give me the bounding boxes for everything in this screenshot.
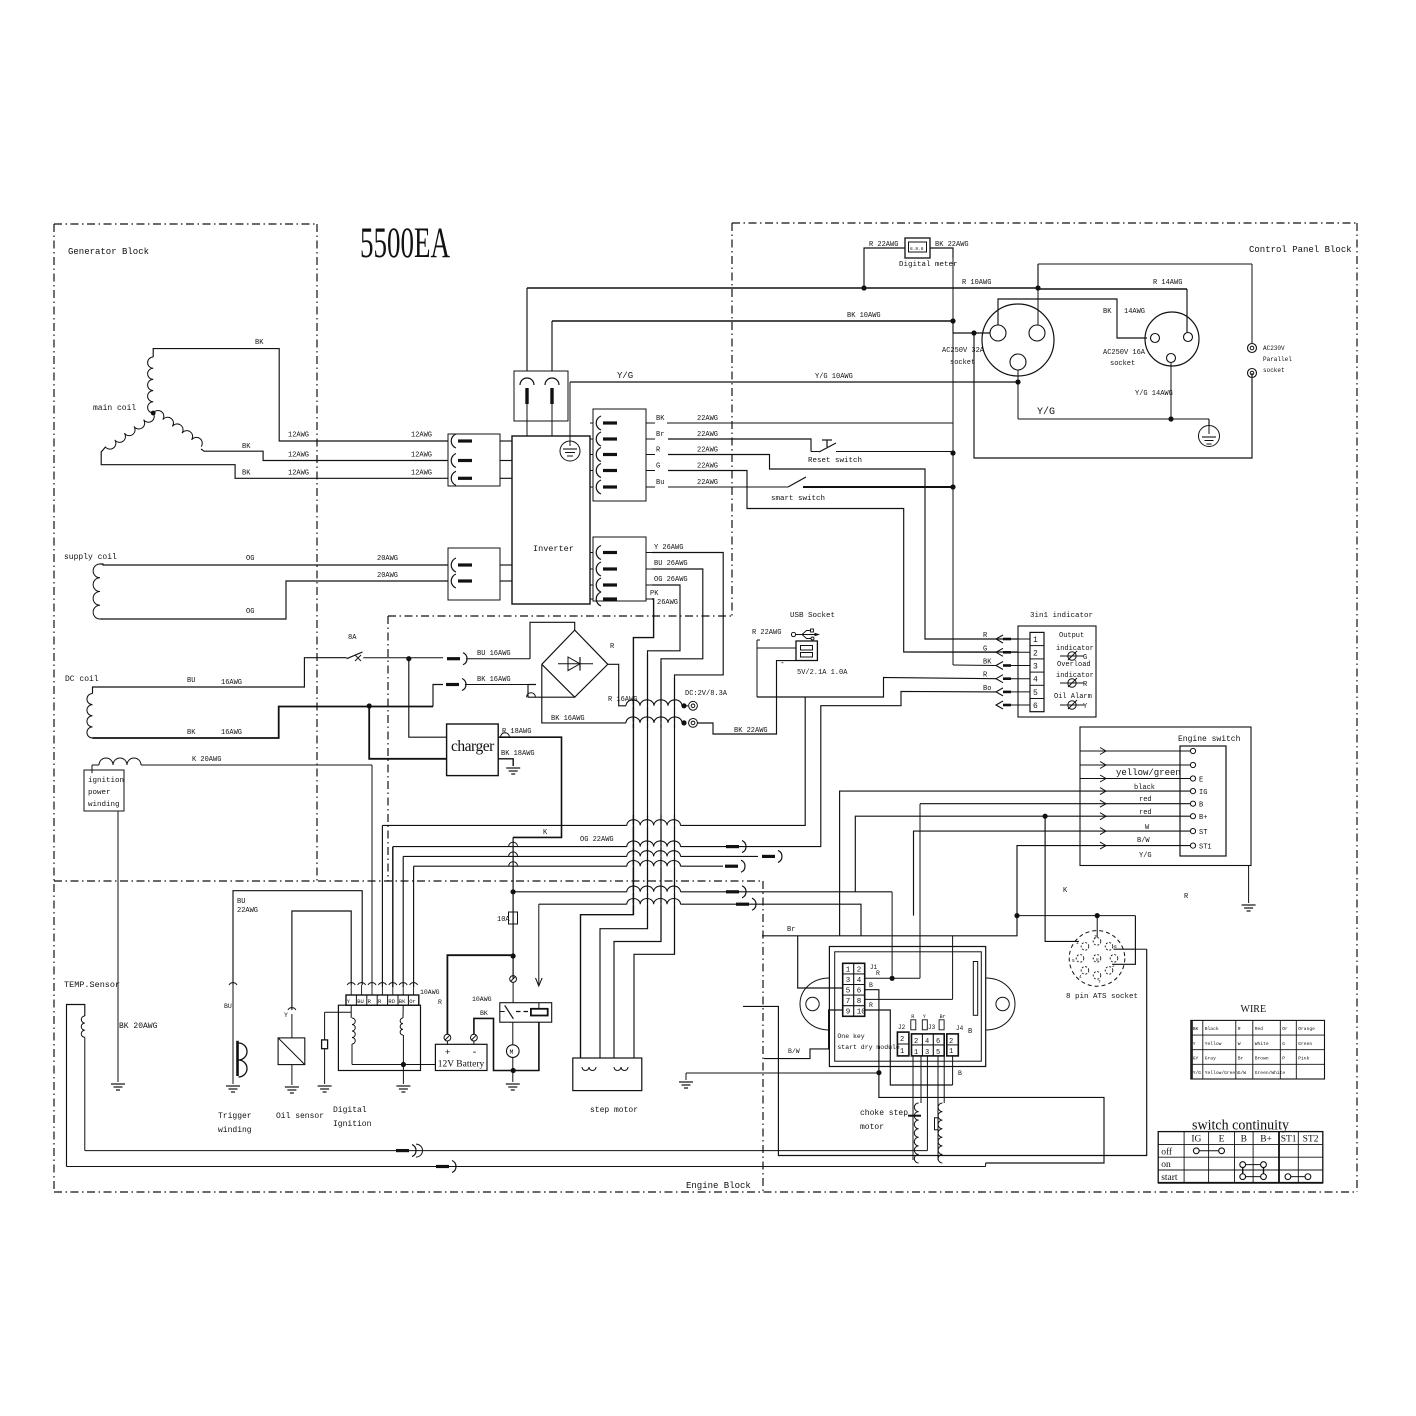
svg-text:Br: Br bbox=[1238, 1056, 1244, 1062]
svg-text:yellow/green: yellow/green bbox=[1116, 768, 1181, 778]
svg-text:Yellow: Yellow bbox=[1205, 1041, 1222, 1047]
svg-text:Inverter: Inverter bbox=[533, 544, 574, 554]
svg-text:5500EA: 5500EA bbox=[360, 220, 450, 267]
svg-text:Parallel: Parallel bbox=[1263, 356, 1292, 363]
svg-text:BU 26AWG: BU 26AWG bbox=[654, 560, 688, 568]
svg-text:AC250V 16A: AC250V 16A bbox=[1103, 349, 1146, 357]
svg-text:Y/G 10AWG: Y/G 10AWG bbox=[815, 373, 853, 381]
svg-text:supply coil: supply coil bbox=[64, 553, 117, 562]
svg-text:22AWG: 22AWG bbox=[697, 415, 718, 423]
svg-text:R: R bbox=[869, 1002, 873, 1009]
svg-text:4: 4 bbox=[1079, 974, 1082, 980]
svg-text:One key: One key bbox=[837, 1033, 864, 1040]
svg-text:2: 2 bbox=[900, 1036, 904, 1044]
svg-text:BK: BK bbox=[399, 998, 406, 1005]
svg-text:Green/White: Green/White bbox=[1255, 1070, 1286, 1076]
svg-text:3: 3 bbox=[1094, 934, 1097, 940]
svg-text:8A: 8A bbox=[348, 634, 357, 642]
svg-text:Br: Br bbox=[787, 926, 795, 934]
svg-text:on: on bbox=[1161, 1160, 1171, 1170]
svg-text:ST1: ST1 bbox=[1199, 844, 1212, 852]
svg-text:14AWG: 14AWG bbox=[1124, 308, 1145, 316]
svg-text:6: 6 bbox=[1033, 702, 1038, 711]
svg-text:7: 7 bbox=[846, 998, 851, 1006]
svg-text:start: start bbox=[1161, 1173, 1178, 1183]
svg-text:main coil: main coil bbox=[93, 404, 136, 413]
svg-text:BK: BK bbox=[480, 1010, 488, 1017]
svg-text:Y/G: Y/G bbox=[617, 371, 633, 381]
svg-text:choke step: choke step bbox=[860, 1109, 908, 1118]
svg-text:1: 1 bbox=[914, 1049, 918, 1057]
svg-text:Brown: Brown bbox=[1255, 1056, 1269, 1062]
svg-text:4: 4 bbox=[925, 1038, 929, 1046]
svg-text:22AWG: 22AWG bbox=[697, 431, 718, 439]
svg-text:M: M bbox=[510, 1049, 514, 1056]
svg-text:G: G bbox=[1282, 1041, 1285, 1047]
svg-text:R: R bbox=[438, 999, 442, 1006]
svg-text:20AWG: 20AWG bbox=[377, 555, 398, 563]
svg-text:9: 9 bbox=[846, 1009, 851, 1017]
svg-text:BK: BK bbox=[187, 729, 196, 737]
svg-text:OG 26AWG: OG 26AWG bbox=[654, 576, 688, 584]
svg-text:16AWG: 16AWG bbox=[221, 729, 242, 737]
svg-text:26AWG: 26AWG bbox=[657, 599, 678, 607]
svg-text:indicator: indicator bbox=[1056, 645, 1094, 653]
svg-text:12AWG: 12AWG bbox=[411, 452, 432, 460]
svg-text:P: P bbox=[1282, 1056, 1285, 1062]
svg-text:K 20AWG: K 20AWG bbox=[192, 756, 221, 764]
svg-text:Br: Br bbox=[940, 1014, 946, 1020]
svg-text:Y: Y bbox=[284, 1012, 288, 1019]
svg-text:1: 1 bbox=[846, 966, 851, 974]
svg-text:USB Socket: USB Socket bbox=[790, 612, 835, 620]
svg-text:DC:2V/8.3A: DC:2V/8.3A bbox=[685, 690, 728, 698]
svg-text:TEMP.Sensor: TEMP.Sensor bbox=[64, 980, 120, 990]
svg-text:BK 22AWG: BK 22AWG bbox=[734, 727, 768, 735]
svg-text:OG 22AWG: OG 22AWG bbox=[580, 836, 614, 844]
svg-text:3: 3 bbox=[925, 1049, 929, 1057]
svg-text:7: 7 bbox=[1098, 979, 1101, 985]
svg-text:12AWG: 12AWG bbox=[411, 470, 432, 478]
svg-text:Yellow/Green: Yellow/Green bbox=[1205, 1070, 1238, 1076]
svg-text:B: B bbox=[958, 1070, 962, 1077]
svg-text:Generator Block: Generator Block bbox=[68, 247, 149, 257]
svg-text:socket: socket bbox=[950, 359, 975, 367]
svg-text:Y: Y bbox=[923, 1014, 926, 1020]
svg-text:5: 5 bbox=[936, 1049, 940, 1057]
svg-text:Black: Black bbox=[1205, 1026, 1219, 1032]
svg-text:Ignition: Ignition bbox=[333, 1120, 372, 1129]
svg-text:OG: OG bbox=[246, 608, 254, 616]
svg-text:3: 3 bbox=[846, 977, 851, 985]
svg-text:5: 5 bbox=[846, 988, 851, 996]
svg-text:Y: Y bbox=[1193, 1041, 1196, 1047]
svg-text:3: 3 bbox=[1033, 663, 1038, 672]
svg-text:BK: BK bbox=[1193, 1026, 1199, 1032]
svg-text:IG: IG bbox=[1191, 1135, 1201, 1145]
svg-text:Output: Output bbox=[1059, 632, 1084, 640]
svg-text:12V Battery: 12V Battery bbox=[438, 1060, 485, 1070]
svg-text:BU: BU bbox=[224, 1003, 232, 1010]
svg-text:22AWG: 22AWG bbox=[697, 479, 718, 487]
svg-text:1: 1 bbox=[949, 1048, 953, 1056]
svg-text:Or: Or bbox=[409, 998, 416, 1005]
svg-text:socket: socket bbox=[1110, 360, 1135, 368]
svg-text:ST1: ST1 bbox=[1281, 1135, 1297, 1145]
svg-text:Reset switch: Reset switch bbox=[808, 457, 862, 465]
svg-text:R: R bbox=[876, 970, 880, 977]
svg-text:Red: Red bbox=[1255, 1026, 1264, 1032]
svg-text:Overload: Overload bbox=[1057, 661, 1091, 669]
svg-text:BK 16AWG: BK 16AWG bbox=[551, 715, 585, 723]
svg-text:charger: charger bbox=[451, 738, 495, 755]
svg-text:E: E bbox=[1199, 777, 1203, 785]
svg-text:red: red bbox=[1139, 796, 1152, 804]
svg-text:Digital: Digital bbox=[333, 1106, 367, 1115]
svg-text:winding: winding bbox=[218, 1126, 252, 1135]
svg-text:Y/G 14AWG: Y/G 14AWG bbox=[1135, 390, 1173, 398]
svg-text:12AWG: 12AWG bbox=[288, 470, 309, 478]
svg-text:-: - bbox=[471, 1048, 477, 1059]
svg-text:J4: J4 bbox=[956, 1025, 964, 1032]
svg-text:B/W: B/W bbox=[788, 1048, 800, 1055]
svg-text:12AWG: 12AWG bbox=[411, 432, 432, 440]
svg-text:BK: BK bbox=[1103, 308, 1112, 316]
svg-text:B: B bbox=[869, 982, 873, 989]
svg-text:Br: Br bbox=[656, 431, 664, 439]
svg-text:2: 2 bbox=[914, 1038, 918, 1046]
svg-text:Y 26AWG: Y 26AWG bbox=[654, 544, 683, 552]
svg-text:White: White bbox=[1255, 1041, 1269, 1047]
svg-text:Gray: Gray bbox=[1205, 1056, 1216, 1062]
svg-text:20AWG: 20AWG bbox=[377, 572, 398, 580]
svg-text:22AWG: 22AWG bbox=[697, 463, 718, 471]
svg-text:WIRE: WIRE bbox=[1241, 1004, 1267, 1015]
svg-text:Engine switch: Engine switch bbox=[1178, 735, 1241, 744]
svg-text:BU: BU bbox=[357, 998, 364, 1005]
svg-text:Oil sensor: Oil sensor bbox=[276, 1112, 324, 1121]
svg-text:W: W bbox=[1238, 1041, 1241, 1047]
svg-text:5V/2.1A 1.0A: 5V/2.1A 1.0A bbox=[797, 669, 848, 677]
svg-text:BU: BU bbox=[237, 898, 245, 906]
svg-text:8 pin ATS socket: 8 pin ATS socket bbox=[1066, 993, 1138, 1001]
svg-text:R: R bbox=[1238, 1026, 1241, 1032]
svg-text:2: 2 bbox=[1033, 649, 1038, 658]
svg-text:RD: RD bbox=[388, 998, 395, 1005]
svg-text:BK: BK bbox=[255, 339, 264, 347]
svg-text:B: B bbox=[968, 1028, 972, 1036]
svg-text:Green: Green bbox=[1298, 1041, 1312, 1047]
svg-text:Pink: Pink bbox=[1298, 1056, 1309, 1062]
svg-text:BU: BU bbox=[187, 677, 195, 685]
svg-text:8: 8 bbox=[1096, 957, 1099, 963]
svg-text:AC230V: AC230V bbox=[1263, 345, 1285, 352]
svg-text:R 10AWG: R 10AWG bbox=[962, 279, 991, 287]
svg-text:BK: BK bbox=[242, 470, 251, 478]
svg-text:B+: B+ bbox=[1260, 1135, 1272, 1145]
svg-text:G: G bbox=[656, 463, 660, 471]
svg-text:10AWG: 10AWG bbox=[420, 989, 440, 996]
svg-text:ignition: ignition bbox=[88, 777, 124, 785]
svg-text:Bu: Bu bbox=[656, 479, 664, 487]
svg-text:+: + bbox=[445, 1048, 450, 1058]
svg-text:J2: J2 bbox=[898, 1024, 906, 1031]
svg-text:10AWG: 10AWG bbox=[472, 996, 492, 1003]
svg-text:R 18AWG: R 18AWG bbox=[502, 728, 531, 736]
svg-text:R 22AWG: R 22AWG bbox=[752, 629, 781, 637]
svg-text:power: power bbox=[88, 789, 111, 797]
svg-text:BU 16AWG: BU 16AWG bbox=[477, 650, 511, 658]
svg-text:2: 2 bbox=[857, 966, 862, 974]
svg-text:10A: 10A bbox=[497, 916, 510, 924]
svg-text:22AWG: 22AWG bbox=[697, 447, 718, 455]
svg-text:E: E bbox=[1219, 1135, 1225, 1145]
svg-text:B/W: B/W bbox=[1137, 837, 1150, 845]
svg-text:Engine Block: Engine Block bbox=[686, 1181, 751, 1191]
svg-text:motor: motor bbox=[860, 1123, 884, 1132]
svg-text:Control Panel Block: Control Panel Block bbox=[1249, 245, 1352, 255]
svg-text:B: B bbox=[1199, 802, 1203, 810]
svg-text:6: 6 bbox=[936, 1038, 940, 1046]
svg-text:BK: BK bbox=[242, 443, 251, 451]
svg-text:Y/G: Y/G bbox=[1193, 1070, 1202, 1076]
svg-text:PK: PK bbox=[650, 590, 659, 598]
svg-text:1: 1 bbox=[900, 1048, 904, 1056]
svg-text:BK 18AWG: BK 18AWG bbox=[501, 750, 535, 758]
svg-text:1: 1 bbox=[1033, 636, 1038, 645]
svg-text:J3: J3 bbox=[928, 1024, 936, 1031]
svg-text:BK: BK bbox=[656, 415, 665, 423]
svg-text:16AWG: 16AWG bbox=[221, 679, 242, 687]
svg-text:socket: socket bbox=[1263, 367, 1285, 374]
svg-text:5: 5 bbox=[1072, 958, 1075, 964]
svg-text:8.8.8: 8.8.8 bbox=[910, 246, 924, 252]
svg-text:BK 22AWG: BK 22AWG bbox=[935, 241, 969, 249]
svg-text:Y/G: Y/G bbox=[1037, 406, 1055, 418]
svg-text:DC coil: DC coil bbox=[65, 675, 99, 684]
svg-text:Orange: Orange bbox=[1298, 1026, 1315, 1032]
svg-text:R 14AWG: R 14AWG bbox=[1153, 279, 1182, 287]
svg-text:winding: winding bbox=[88, 801, 120, 809]
svg-text:Or: Or bbox=[1282, 1026, 1288, 1032]
svg-text:indicator: indicator bbox=[1056, 672, 1094, 680]
svg-text:GY: GY bbox=[1193, 1056, 1199, 1062]
svg-text:Oil Alarm: Oil Alarm bbox=[1054, 693, 1092, 701]
svg-text:B+: B+ bbox=[1199, 814, 1207, 822]
svg-text:12AWG: 12AWG bbox=[288, 452, 309, 460]
svg-text:ST: ST bbox=[1199, 829, 1207, 837]
svg-text:4: 4 bbox=[857, 977, 862, 985]
svg-text:IG: IG bbox=[1199, 789, 1207, 797]
svg-text:Y/G: Y/G bbox=[1139, 852, 1152, 860]
svg-text:5: 5 bbox=[1033, 689, 1038, 698]
svg-text:BK 10AWG: BK 10AWG bbox=[847, 312, 881, 320]
svg-text:Digital meter: Digital meter bbox=[899, 261, 958, 269]
svg-text:G/W: G/W bbox=[1238, 1070, 1247, 1076]
svg-text:B: B bbox=[1241, 1135, 1247, 1145]
svg-text:OG: OG bbox=[246, 555, 254, 563]
svg-text:12AWG: 12AWG bbox=[288, 432, 309, 440]
svg-text:R 22AWG: R 22AWG bbox=[869, 241, 898, 249]
svg-text:BK 16AWG: BK 16AWG bbox=[477, 676, 511, 684]
svg-text:2: 2 bbox=[949, 1038, 953, 1046]
svg-text:8: 8 bbox=[857, 998, 862, 1006]
svg-text:22AWG: 22AWG bbox=[237, 907, 258, 915]
svg-text:step motor: step motor bbox=[590, 1106, 638, 1115]
svg-text:ST2: ST2 bbox=[1303, 1135, 1319, 1145]
svg-text:AC250V 32A: AC250V 32A bbox=[942, 347, 985, 355]
svg-text:smart switch: smart switch bbox=[771, 495, 825, 503]
svg-text:4: 4 bbox=[1033, 676, 1038, 685]
svg-text:3in1 indicator: 3in1 indicator bbox=[1030, 612, 1093, 620]
svg-text:BK 20AWG: BK 20AWG bbox=[119, 1022, 158, 1031]
svg-text:Trigger: Trigger bbox=[218, 1112, 252, 1121]
svg-text:off: off bbox=[1161, 1146, 1173, 1157]
svg-text:6: 6 bbox=[857, 988, 862, 996]
svg-text:R: R bbox=[911, 1014, 914, 1020]
